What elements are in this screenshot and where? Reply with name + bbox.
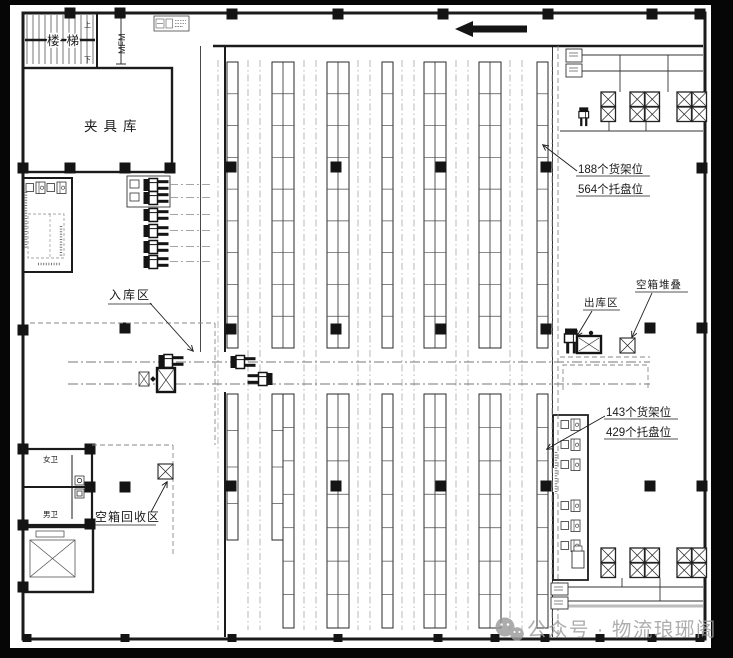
north-rack-count-line2: 564个托盘位 [578, 182, 643, 196]
column-marker [541, 162, 552, 173]
column-marker [18, 444, 29, 455]
watermark: 公众号 · 物流琅琊阁 [496, 618, 717, 642]
pallet-rack [382, 394, 393, 628]
north-rack-count-line1: 188个货架位 [578, 162, 643, 176]
equipment-cell [601, 92, 616, 107]
column-marker [226, 162, 237, 173]
watermark-text: 公众号 · 物流琅琊阁 [527, 619, 717, 641]
equipment-cell [630, 563, 645, 578]
column-marker [115, 8, 126, 19]
equipment-cell [645, 92, 660, 107]
column-marker [436, 481, 447, 492]
column-marker [165, 163, 176, 174]
equipment-cell [601, 563, 616, 578]
equipment-cell [692, 563, 707, 578]
column-marker [543, 9, 554, 20]
equipment-cell [630, 548, 645, 563]
empty-box-recycling-label: 空箱回收区 [95, 509, 160, 524]
column-marker [436, 162, 447, 173]
column-marker [333, 9, 344, 20]
empty-box-stacking-label: 空箱堆叠 [636, 278, 682, 291]
equipment-cell [692, 107, 707, 122]
title-block [154, 16, 189, 31]
column-marker [697, 481, 708, 492]
empty-box-stack-icon [620, 338, 635, 353]
equipment-cell [677, 563, 692, 578]
empty-box-recycle-icon [158, 464, 173, 479]
column-marker [331, 324, 342, 335]
column-marker [541, 481, 552, 492]
column-marker [120, 163, 131, 174]
outbound-zone-label: 出库区 [584, 296, 619, 309]
column-marker [120, 323, 131, 334]
column-marker [120, 482, 131, 493]
south-rack-count-line1: 143个货架位 [606, 405, 671, 419]
toilet-male-label: 男卫 [43, 510, 58, 519]
south-rack-count-line2: 429个托盘位 [606, 425, 671, 439]
column-marker [541, 324, 552, 335]
column-marker [18, 520, 29, 531]
column-marker [65, 8, 76, 19]
column-marker [697, 323, 708, 334]
column-marker [228, 634, 237, 642]
column-marker [23, 634, 32, 642]
pallet-rack [382, 62, 393, 348]
column-marker [647, 9, 658, 20]
equipment-cell [645, 107, 660, 122]
equipment-cell [645, 548, 660, 563]
column-marker [18, 582, 29, 593]
column-marker [85, 519, 96, 530]
equipment-cell [677, 92, 692, 107]
inbound-zone-label: 入库区 [109, 287, 151, 302]
column-marker [645, 481, 656, 492]
column-marker [65, 163, 76, 174]
equipment-cell [692, 92, 707, 107]
column-marker [227, 9, 238, 20]
column-marker [18, 325, 29, 336]
column-marker [491, 634, 500, 642]
equipment-cell [601, 548, 616, 563]
column-marker [697, 163, 708, 174]
warehouse-floor-plan: 楼梯 上 下 MFM 夹具库 入库区 出库区 空箱堆叠 空箱回收区 女卫 男卫 … [0, 0, 733, 658]
column-marker [434, 634, 443, 642]
column-marker [334, 634, 343, 642]
grid-mark-label: MFM [117, 34, 127, 55]
toilet-female-label: 女卫 [43, 454, 58, 464]
stairs-label: 楼梯 [47, 33, 86, 48]
column-marker [226, 324, 237, 335]
column-marker [438, 9, 449, 20]
column-marker [645, 323, 656, 334]
equipment-cell [677, 548, 692, 563]
stairs-down-label: 下 [84, 56, 91, 64]
equipment-cell [645, 563, 660, 578]
equipment-cell [601, 107, 616, 122]
column-marker [331, 162, 342, 173]
column-marker [226, 481, 237, 492]
pallet-rack [283, 394, 294, 628]
floor-plan-canvas: 楼梯 上 下 MFM 夹具库 入库区 出库区 空箱堆叠 空箱回收区 女卫 男卫 … [0, 0, 733, 658]
column-marker [436, 324, 447, 335]
pallet-rack [227, 62, 238, 348]
column-marker [121, 634, 130, 642]
equipment-cell [630, 107, 645, 122]
column-marker [695, 9, 706, 20]
column-marker [331, 481, 342, 492]
pallet-rack [537, 394, 548, 628]
equipment-cell [692, 548, 707, 563]
column-marker [85, 482, 96, 493]
equipment-cell [630, 92, 645, 107]
fixture-warehouse-label: 夹具库 [84, 119, 143, 134]
equipment-cell [677, 107, 692, 122]
pallet-rack [537, 62, 548, 348]
stairs-up-label: 上 [84, 20, 91, 29]
column-marker [18, 163, 29, 174]
